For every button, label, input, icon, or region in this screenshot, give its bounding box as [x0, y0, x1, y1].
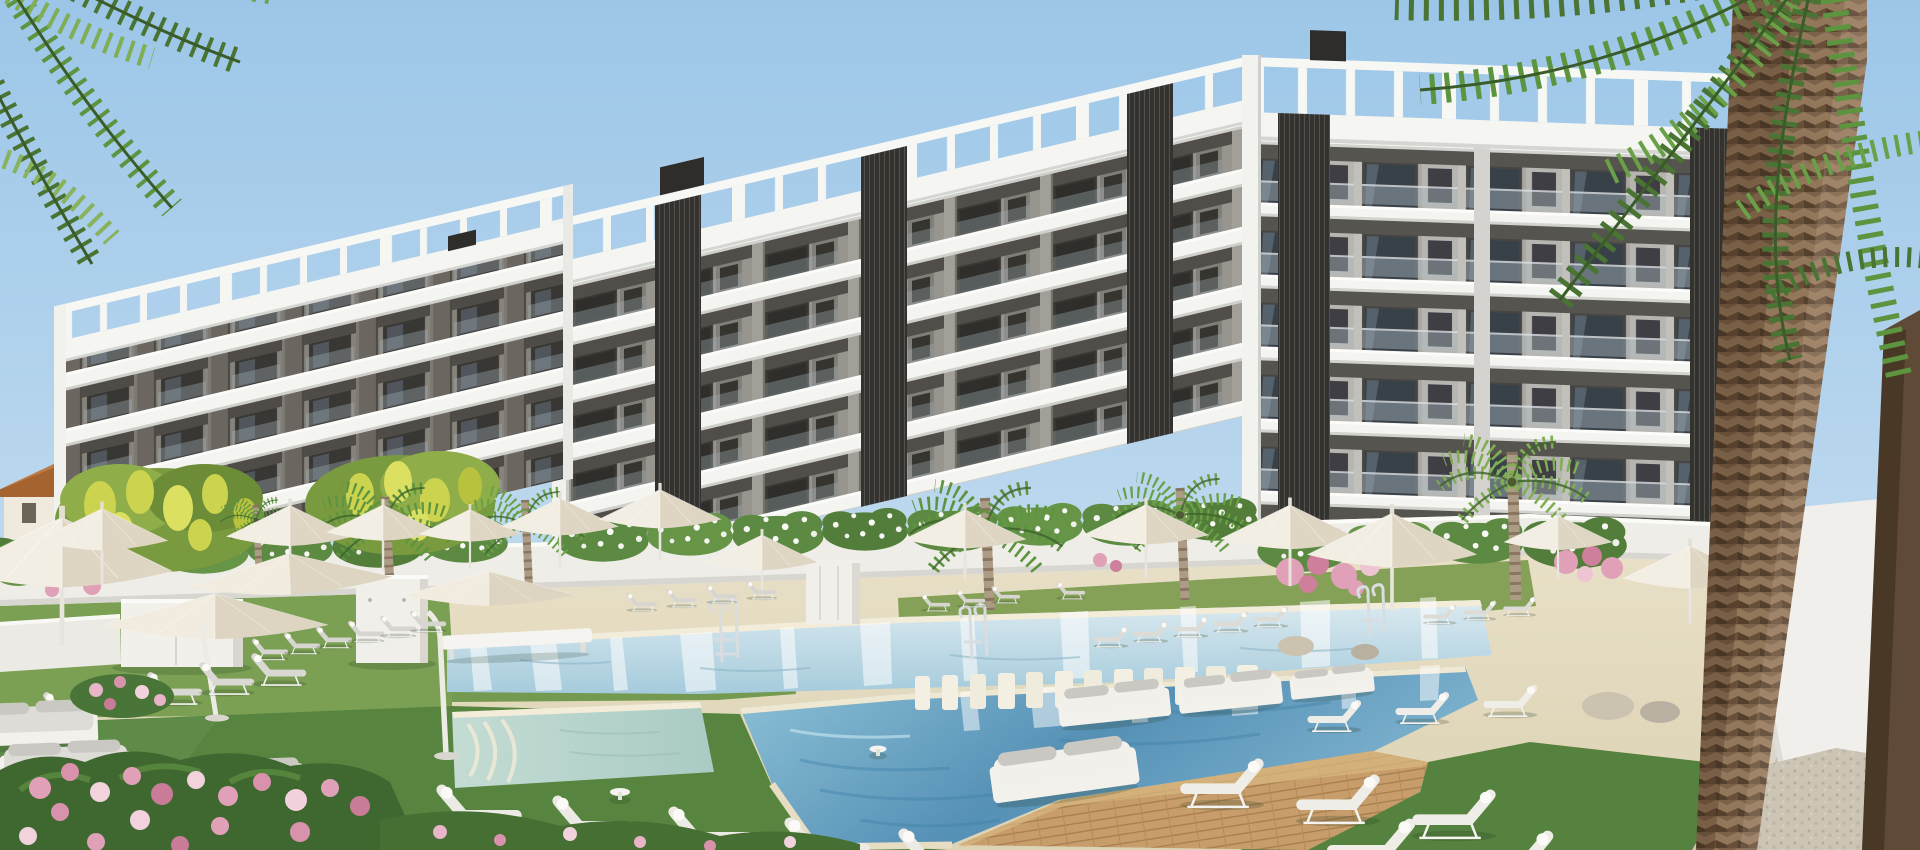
corner-pillar	[1242, 55, 1260, 525]
rooftop-unit	[1310, 30, 1346, 61]
pink-shrub-left	[70, 674, 174, 718]
louver-column	[1278, 113, 1330, 523]
louver-column	[861, 146, 907, 507]
right-block-south-wing	[1250, 28, 1762, 538]
louver-column	[1127, 83, 1173, 444]
architectural-render	[0, 0, 1920, 850]
cabana-box	[806, 560, 860, 624]
scene-svg	[0, 0, 1920, 850]
